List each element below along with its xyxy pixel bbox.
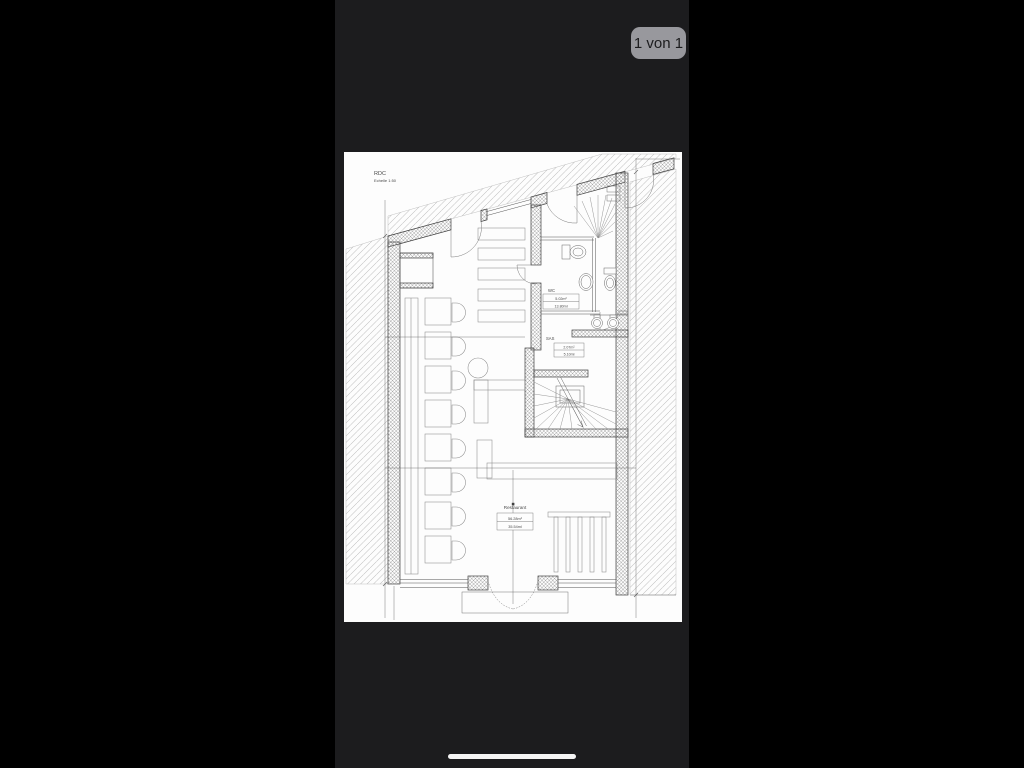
plan-scale: Echelle 1:50 — [374, 178, 397, 183]
room-label-sas: SAS — [546, 336, 555, 341]
svg-text:5.02m²: 5.02m² — [555, 297, 567, 301]
home-indicator[interactable] — [448, 754, 576, 759]
room-area-box-wc: 5.02m² 13.80ml — [543, 294, 579, 309]
svg-text:2.07m²: 2.07m² — [563, 346, 575, 350]
room-label-wc: WC — [548, 288, 555, 293]
plan-title: RDC — [374, 171, 386, 177]
main-staircase — [534, 377, 616, 429]
bar-units — [548, 512, 610, 572]
center-tables — [478, 228, 525, 322]
page-indicator-badge[interactable]: 1 von 1 — [631, 27, 686, 59]
svg-text:13.80ml: 13.80ml — [554, 305, 567, 309]
round-table — [468, 358, 488, 378]
entrance-porch — [462, 592, 568, 613]
room-area-box-sas: 2.07m² 5.10ml — [554, 343, 584, 357]
washbasin-oval-icon — [579, 274, 593, 291]
table-chair-units — [425, 298, 466, 563]
floor-plan: RDC Echelle 1:50 WC 5.02m² 13.80ml SAS 2… — [344, 152, 682, 622]
svg-text:56.28m²: 56.28m² — [508, 517, 523, 521]
svg-text:35.54ml: 35.54ml — [508, 525, 522, 529]
svg-text:5.10ml: 5.10ml — [564, 353, 575, 357]
pdf-viewer: 1 von 1 — [335, 0, 689, 768]
document-page[interactable]: RDC Echelle 1:50 WC 5.02m² 13.80ml SAS 2… — [344, 152, 682, 622]
screenshot-root: 1 von 1 — [0, 0, 1024, 768]
room-area-box-restaurant: 56.28m² 35.54ml — [497, 513, 533, 530]
room-label-restaurant: Restaurant — [504, 505, 527, 510]
toilet-icon — [562, 245, 586, 259]
sanitary-fixtures — [562, 245, 619, 329]
washbasins-icon — [592, 315, 619, 329]
toilet-icon-2 — [604, 268, 616, 291]
